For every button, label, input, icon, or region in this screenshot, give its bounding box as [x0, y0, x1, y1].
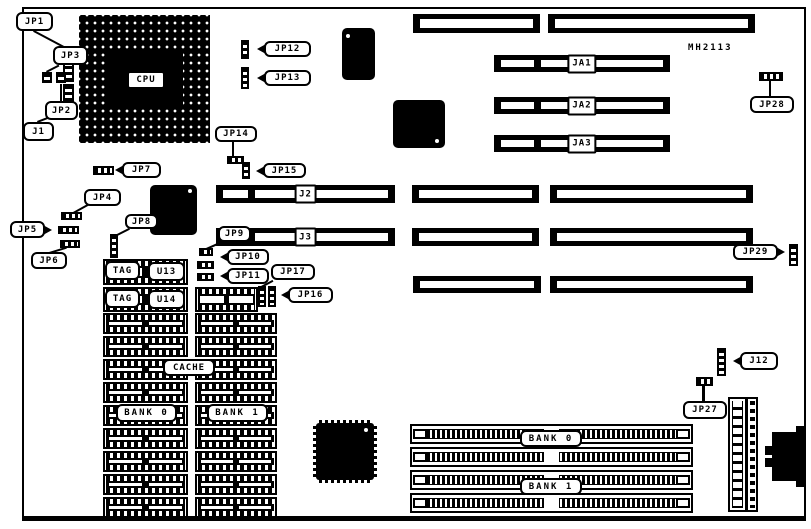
jumper-label-jp14: JP14: [215, 126, 257, 142]
jumper-jp15-header: [242, 162, 250, 179]
slot-ja2: JA2: [494, 97, 670, 114]
isa-slot-segment: [412, 185, 539, 203]
simm-bank1-label: BANK 1: [520, 478, 582, 495]
power-connector: [728, 397, 747, 512]
jumper-j12-header: [717, 348, 726, 376]
jumper-jp17-header: [258, 286, 266, 307]
keyboard-connector-bracket: [796, 426, 806, 487]
cache-bank1-label: BANK 1: [207, 404, 268, 422]
motherboard-diagram: CPU JA1 JA2 JA3 J2 J3: [0, 0, 811, 529]
jumper-jp3-header: [42, 72, 52, 83]
tag-label: TAG: [105, 289, 140, 308]
cache-chip: [103, 428, 188, 449]
qfp-pins-right: [374, 426, 377, 477]
leader-line: [702, 385, 705, 402]
cache-chip: [195, 313, 277, 334]
slot-ja3: JA3: [494, 135, 670, 152]
slot-j2: J2: [216, 185, 395, 203]
connector-label-j1: J1: [23, 122, 54, 141]
jumper-label-jp8: JP8: [125, 214, 158, 229]
jumper-jp29-header: [789, 244, 798, 266]
simm-bank0-label: BANK 0: [520, 430, 582, 447]
simm-slot: [410, 447, 693, 467]
slot-label-j2: J2: [294, 185, 317, 204]
cpu-socket: CPU: [79, 15, 210, 143]
jumper-jp4-header: [61, 212, 82, 220]
tag-label: TAG: [105, 261, 140, 280]
isa-slot-segment: [412, 228, 539, 246]
cache-chip: [195, 382, 277, 403]
cache-chip: [195, 428, 277, 449]
cache-chip: [103, 336, 188, 357]
cache-chip: [103, 382, 188, 403]
cache-chip: [103, 313, 188, 334]
ic-chip: [393, 100, 445, 148]
qfp-pins-top: [319, 420, 371, 423]
isa-slot-segment: [413, 276, 541, 293]
qfp-chip: [316, 423, 374, 480]
slot-ja1: JA1: [494, 55, 670, 72]
dip-socket: [195, 287, 258, 312]
qfp-pins-left: [313, 426, 316, 477]
cache-chip: [103, 451, 188, 472]
cache-chip: [195, 336, 277, 357]
cache-chip: [195, 497, 277, 518]
isa-slot-segment: [548, 14, 755, 33]
leader-line: [232, 141, 234, 157]
jumper-label-jp29: JP29: [733, 244, 778, 260]
jumper-label-jp9: JP9: [218, 226, 251, 242]
cache-chip: [103, 497, 188, 518]
isa-slot-segment: [413, 14, 540, 33]
jumper-label-jp1: JP1: [16, 12, 53, 31]
keyboard-connector-pin: [765, 446, 773, 455]
power-connector-pins: [746, 397, 758, 512]
ic-chip: [150, 185, 197, 235]
cache-chip: [195, 451, 277, 472]
isa-slot-segment: [550, 228, 753, 246]
jumper-label-jp7: JP7: [122, 162, 161, 178]
cache-chip: [195, 474, 277, 495]
jumper-jp16-header: [268, 286, 276, 307]
jumper-label-jp2: JP2: [45, 101, 78, 120]
jumper-label-jp13: JP13: [264, 70, 311, 86]
qfp-pins-bottom: [319, 480, 371, 483]
jumper-label-jp15: JP15: [263, 163, 306, 178]
isa-slot-segment: [550, 276, 753, 293]
leader-line: [769, 79, 771, 97]
isa-slot-segment: [550, 185, 753, 203]
jumper-label-jp27: JP27: [683, 401, 727, 419]
jumper-jp10-header: [197, 261, 214, 269]
part-number: MH2113: [688, 43, 733, 53]
jumper-label-jp4: JP4: [84, 189, 121, 206]
jumper-jp5-header: [58, 226, 79, 234]
jumper-jp2-header: [56, 72, 66, 83]
ic-chip: [342, 28, 375, 80]
cache-bank0-label: BANK 0: [116, 404, 177, 422]
connector-label-j12: J12: [740, 352, 778, 370]
jumper-label-jp12: JP12: [264, 41, 311, 57]
cache-label: CACHE: [163, 359, 215, 376]
cpu-label: CPU: [128, 72, 164, 88]
jumper-label-jp3: JP3: [53, 46, 88, 65]
jumper-jp7-header: [93, 166, 114, 175]
keyboard-connector: [772, 432, 798, 481]
jumper-jp12-header: [241, 40, 249, 59]
jumper-jp13-header: [241, 67, 249, 89]
jumper-jp11-header: [197, 273, 214, 281]
u13-label: U13: [148, 262, 185, 281]
keyboard-connector-pin: [765, 458, 773, 467]
jumper-label-jp11: JP11: [227, 268, 269, 284]
slot-label-ja1: JA1: [567, 54, 596, 73]
jumper-label-jp6: JP6: [31, 252, 67, 269]
leader-line: [60, 84, 62, 102]
jumper-jp28-header: [759, 72, 783, 81]
slot-label-ja2: JA2: [567, 96, 596, 115]
u14-label: U14: [148, 290, 185, 309]
jumper-label-jp10: JP10: [227, 249, 269, 265]
jumper-label-jp17: JP17: [271, 264, 315, 280]
jumper-label-jp5: JP5: [10, 221, 45, 238]
simm-slot: [410, 493, 693, 513]
slot-label-j3: J3: [294, 228, 317, 247]
jumper-label-jp28: JP28: [750, 96, 794, 113]
cache-chip: [103, 474, 188, 495]
slot-label-ja3: JA3: [567, 134, 596, 153]
jumper-label-jp16: JP16: [288, 287, 333, 303]
